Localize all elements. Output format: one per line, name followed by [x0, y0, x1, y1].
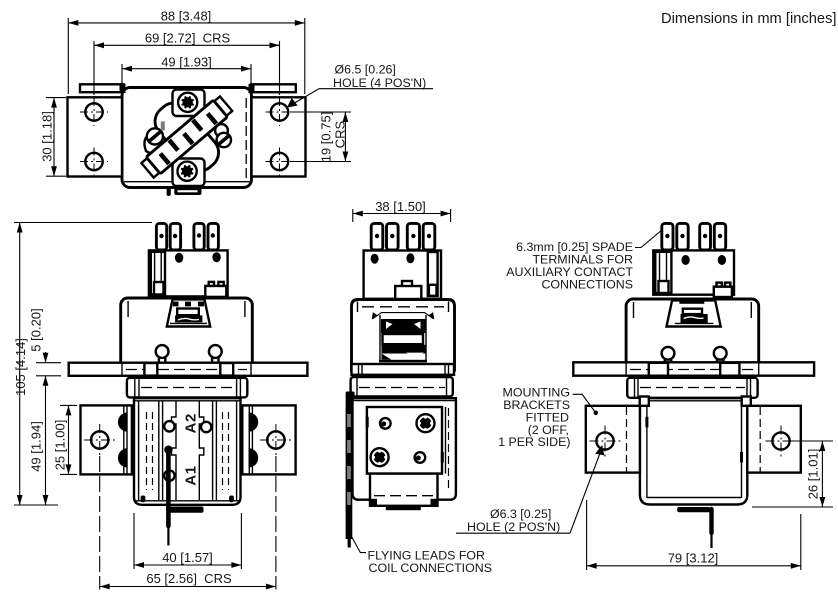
svg-text:CONNECTIONS: CONNECTIONS: [541, 278, 633, 292]
svg-text:Dimensions in mm [inches]: Dimensions in mm [inches]: [661, 11, 837, 27]
svg-text:1 PER SIDE): 1 PER SIDE): [498, 435, 570, 449]
svg-text:38 [1.50]: 38 [1.50]: [375, 199, 426, 214]
svg-text:49 [1.93]: 49 [1.93]: [161, 54, 212, 69]
svg-text:40 [1.57]: 40 [1.57]: [162, 550, 213, 565]
svg-text:Ø6.3 [0.25]: Ø6.3 [0.25]: [490, 507, 551, 521]
svg-text:HOLE (4 POS'N): HOLE (4 POS'N): [333, 76, 426, 90]
svg-text:HOLE (2 POS'N): HOLE (2 POS'N): [467, 520, 560, 534]
svg-text:88 [3.48]: 88 [3.48]: [161, 9, 212, 24]
svg-text:26 [1.01]: 26 [1.01]: [806, 449, 821, 500]
svg-text:COIL CONNECTIONS: COIL CONNECTIONS: [369, 561, 492, 575]
svg-text:Ø6.5 [0.26]: Ø6.5 [0.26]: [335, 63, 396, 77]
svg-text:79 [3.12]: 79 [3.12]: [668, 551, 719, 566]
svg-text:A2: A2: [183, 413, 200, 433]
svg-text:49 [1.94]: 49 [1.94]: [29, 421, 44, 472]
svg-text:5 [0.20]: 5 [0.20]: [29, 308, 44, 351]
svg-text:30 [1.18]: 30 [1.18]: [40, 111, 55, 162]
svg-text:105 [4.14]: 105 [4.14]: [13, 338, 28, 396]
svg-text:69 [2.72] CRS: 69 [2.72] CRS: [145, 31, 231, 46]
svg-text:A1: A1: [183, 465, 200, 485]
svg-text:65 [2.56] CRS: 65 [2.56] CRS: [146, 571, 232, 586]
svg-text:19 [0.75]: 19 [0.75]: [319, 112, 334, 163]
svg-text:25 [1.00]: 25 [1.00]: [53, 420, 68, 471]
